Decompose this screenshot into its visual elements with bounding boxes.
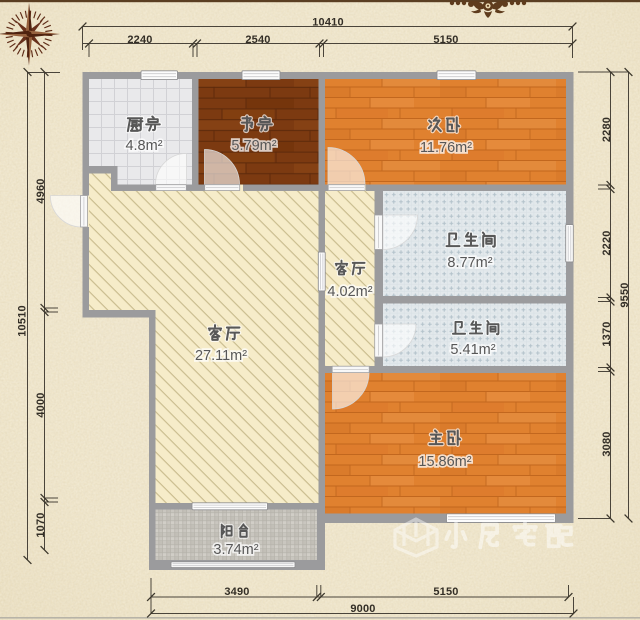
svg-text:4000: 4000 <box>35 392 47 417</box>
svg-text:1070: 1070 <box>35 512 47 537</box>
svg-text:4.8m²: 4.8m² <box>125 138 162 154</box>
svg-text:5.41m²: 5.41m² <box>450 342 495 358</box>
svg-text:11.76m²: 11.76m² <box>420 140 472 156</box>
svg-text:5150: 5150 <box>433 34 458 46</box>
svg-text:4.02m²: 4.02m² <box>327 284 372 300</box>
svg-text:9000: 9000 <box>350 603 375 615</box>
svg-text:27.11m²: 27.11m² <box>195 348 247 364</box>
svg-text:4960: 4960 <box>35 178 47 203</box>
svg-text:3490: 3490 <box>224 586 249 598</box>
svg-text:9550: 9550 <box>619 282 631 307</box>
svg-text:3.74m²: 3.74m² <box>213 542 258 558</box>
svg-text:3080: 3080 <box>601 431 613 456</box>
svg-text:8.77m²: 8.77m² <box>447 255 492 271</box>
svg-text:10410: 10410 <box>312 16 344 28</box>
svg-text:2540: 2540 <box>245 34 270 46</box>
svg-text:15.86m²: 15.86m² <box>418 454 471 470</box>
svg-text:2240: 2240 <box>127 34 152 46</box>
svg-text:5150: 5150 <box>433 586 458 598</box>
svg-text:2220: 2220 <box>601 230 613 255</box>
svg-text:2280: 2280 <box>601 117 613 142</box>
svg-text:1370: 1370 <box>601 321 613 346</box>
svg-text:5.79m²: 5.79m² <box>231 138 276 154</box>
svg-text:10510: 10510 <box>17 305 29 337</box>
